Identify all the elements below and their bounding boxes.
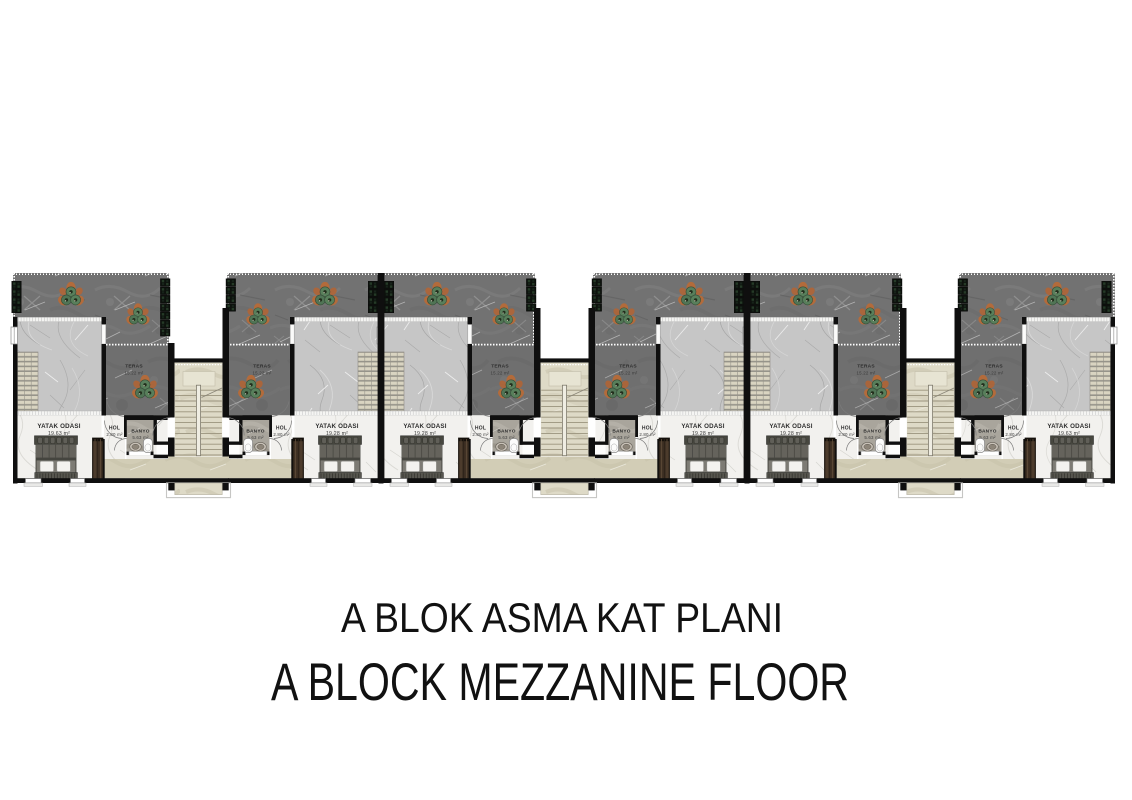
svg-text:15.22 m²: 15.22 m² (857, 371, 876, 376)
svg-text:15.22 m²: 15.22 m² (985, 371, 1004, 376)
svg-text:YATAK ODASI: YATAK ODASI (37, 423, 80, 430)
svg-text:YATAK ODASI: YATAK ODASI (315, 423, 358, 430)
svg-text:HOL: HOL (276, 426, 287, 432)
svg-text:A BLOCK MEZZANINE FLOOR: A BLOCK MEZZANINE FLOOR (271, 653, 849, 712)
svg-text:15.22 m²: 15.22 m² (253, 371, 272, 376)
svg-text:BANYO: BANYO (131, 429, 149, 435)
svg-text:BANYO: BANYO (246, 429, 264, 435)
svg-text:TERAS: TERAS (857, 364, 875, 370)
svg-text:HOL: HOL (841, 426, 852, 432)
svg-text:HOL: HOL (475, 426, 486, 432)
svg-text:YATAK ODASI: YATAK ODASI (403, 423, 446, 430)
svg-text:YATAK ODASI: YATAK ODASI (1047, 423, 1090, 430)
svg-text:15.22 m²: 15.22 m² (125, 371, 144, 376)
svg-text:HOL: HOL (1008, 426, 1019, 432)
svg-text:BANYO: BANYO (863, 429, 881, 435)
svg-text:BANYO: BANYO (978, 429, 996, 435)
svg-text:15.22 m²: 15.22 m² (491, 371, 510, 376)
svg-text:BANYO: BANYO (612, 429, 630, 435)
svg-text:TERAS: TERAS (491, 364, 509, 370)
svg-text:YATAK ODASI: YATAK ODASI (769, 423, 812, 430)
svg-text:A BLOK ASMA KAT PLANI: A BLOK ASMA KAT PLANI (341, 594, 783, 641)
svg-text:TERAS: TERAS (619, 364, 637, 370)
svg-text:TERAS: TERAS (125, 364, 143, 370)
svg-text:TERAS: TERAS (985, 364, 1003, 370)
svg-text:YATAK ODASI: YATAK ODASI (681, 423, 724, 430)
svg-text:BANYO: BANYO (497, 429, 515, 435)
svg-text:15.22 m²: 15.22 m² (619, 371, 638, 376)
svg-text:HOL: HOL (109, 426, 120, 432)
svg-text:HOL: HOL (642, 426, 653, 432)
svg-text:TERAS: TERAS (253, 364, 271, 370)
